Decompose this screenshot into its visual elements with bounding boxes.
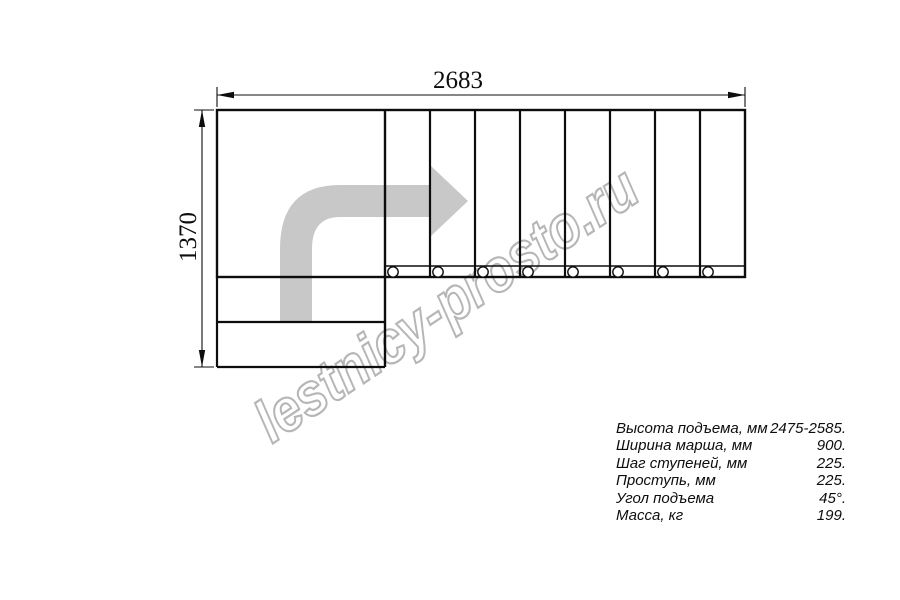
spec-label: Высота подъема, мм [616, 420, 768, 437]
spec-table: Высота подъема, мм 2475-2585. Ширина мар… [616, 420, 846, 524]
spec-value: 225. [817, 455, 846, 472]
spec-row-angle: Угол подъема 45°. [616, 490, 846, 507]
spec-value: 45°. [819, 490, 846, 507]
spec-row-flight-width: Ширина марша, мм 900. [616, 437, 846, 454]
spec-row-tread-depth: Проступь, мм 225. [616, 472, 846, 489]
spec-label: Угол подъема [616, 490, 714, 507]
height-dimension-label: 1370 [175, 212, 202, 262]
spec-label: Проступь, мм [616, 472, 716, 489]
spec-label: Масса, кг [616, 507, 683, 524]
spec-value: 2475-2585. [770, 420, 846, 437]
width-dimension-label: 2683 [433, 67, 483, 94]
spec-row-mass: Масса, кг 199. [616, 507, 846, 524]
spec-label: Ширина марша, мм [616, 437, 752, 454]
spec-row-height: Высота подъема, мм 2475-2585. [616, 420, 846, 437]
staircase-drawing-page: lestnicy-prosto.ru [0, 0, 900, 600]
spec-value: 199. [817, 507, 846, 524]
spec-value: 225. [817, 472, 846, 489]
spec-value: 900. [817, 437, 846, 454]
spec-label: Шаг ступеней, мм [616, 455, 747, 472]
spec-row-step-pitch: Шаг ступеней, мм 225. [616, 455, 846, 472]
